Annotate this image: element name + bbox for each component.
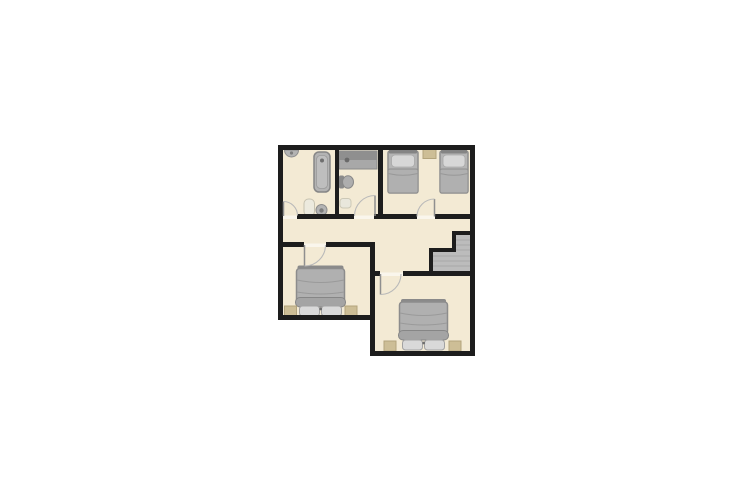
threshold-bedroom-left <box>304 244 326 248</box>
bedside-mat <box>423 150 436 159</box>
wall-outer-left <box>278 145 283 320</box>
wall-hall-top-3 <box>435 214 470 219</box>
toilet <box>304 199 315 216</box>
wc-toilet-bowl <box>343 176 354 188</box>
threshold-bathroom <box>283 216 297 220</box>
wall-center-vertical <box>370 242 375 356</box>
wall-hall-top-2 <box>374 214 417 219</box>
nightstand-left-2 <box>345 306 357 316</box>
wall-divider-wc-bedroom <box>378 148 383 217</box>
vanity-counter-back <box>339 151 377 160</box>
wall-bedroom-right-top-1 <box>373 271 380 276</box>
threshold-bedroom-right <box>380 273 403 277</box>
wall-outer-top <box>278 145 475 150</box>
round-sink-drain <box>319 208 323 212</box>
single-bed-left-headboard <box>389 150 417 154</box>
wall-bedroom-left-top-2 <box>326 242 375 247</box>
double-bed-right-button <box>422 342 425 345</box>
single-bed-right-duvet <box>440 169 468 193</box>
wall-bedroom-right-top-2 <box>403 271 475 276</box>
nightstand-right-1 <box>384 341 396 351</box>
double-bed-left-pillow-right <box>322 306 342 316</box>
double-bed-right-duvet <box>400 302 448 334</box>
vanity-faucet <box>345 158 350 163</box>
wall-stair-step-v2 <box>429 248 433 273</box>
wall-bedroom-left-bottom <box>278 315 375 320</box>
single-bed-left-pillow <box>392 155 415 167</box>
wall-divider-bath-wc <box>335 148 339 217</box>
double-bed-right-pillow-right <box>425 340 445 350</box>
double-bed-right-roll <box>399 331 449 341</box>
nightstand-right-2 <box>449 341 461 351</box>
wall-bedroom-right-bottom <box>370 351 475 356</box>
wall-stair-step-mid <box>429 248 456 252</box>
double-bed-right-pillow-left <box>403 340 423 350</box>
threshold-twin-bedroom <box>417 216 435 220</box>
wall-basin-faucet <box>290 151 293 154</box>
wall-bedroom-left-top-1 <box>278 242 304 247</box>
single-bed-left-duvet <box>388 169 418 193</box>
floor-plan-page <box>0 0 755 504</box>
double-bed-left-pillow-left <box>300 306 320 316</box>
bathtub-drain <box>320 159 324 163</box>
wall-outer-right <box>470 145 475 356</box>
wall-hall-top-1 <box>297 214 354 219</box>
wall-stair-step-v1 <box>452 231 456 250</box>
nightstand-left-1 <box>285 306 297 316</box>
double-bed-left-button <box>319 308 322 311</box>
floor-plan-canvas <box>0 0 755 504</box>
single-bed-right-pillow <box>443 155 465 167</box>
wc-mat <box>340 199 351 209</box>
single-bed-right-headboard <box>441 150 467 154</box>
threshold-wc <box>354 216 374 220</box>
